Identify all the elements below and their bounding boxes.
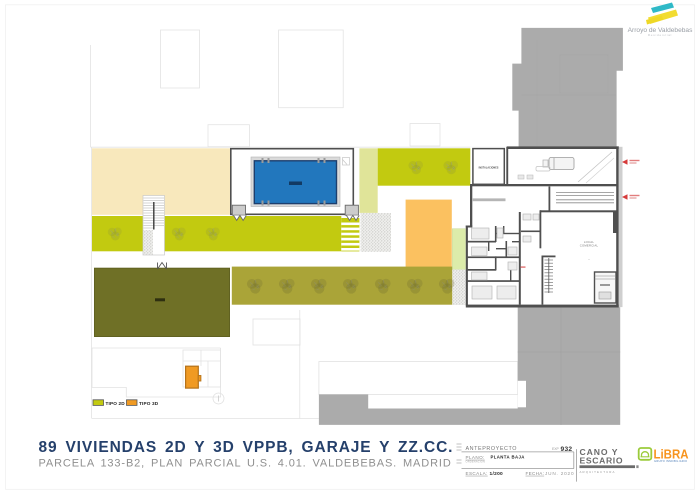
svg-text:89 VIVIENDAS 2D Y 3D VPPB, GAR: 89 VIVIENDAS 2D Y 3D VPPB, GARAJE Y ZZ.C… [39,439,454,456]
svg-text:ESCARIO: ESCARIO [580,455,623,465]
svg-text:TIPO 3D: TIPO 3D [139,401,159,406]
svg-text:INSTALACIONES: INSTALACIONES [479,166,499,169]
svg-text:TIPO 2D: TIPO 2D [106,401,126,406]
svg-text:PLANO:: PLANO: [466,455,485,460]
svg-text:932: 932 [561,446,573,453]
svg-text:COMERCIAL: COMERCIAL [580,244,599,248]
svg-text:JUN. 2020: JUN. 2020 [545,471,574,476]
svg-text:GRUPO INMOBILIARIO: GRUPO INMOBILIARIO [654,459,687,463]
svg-text:ORDENACION: ORDENACION [466,459,486,463]
svg-text:ESCALA:: ESCALA: [466,471,488,476]
svg-text:PLANTA BAJA: PLANTA BAJA [491,455,525,460]
svg-text:ARQUITECTURA: ARQUITECTURA [580,470,616,474]
svg-text:Residencial: Residencial [648,33,672,37]
svg-text:FECHA:: FECHA: [526,471,545,476]
svg-text:~: ~ [588,257,590,261]
svg-text:PARCELA 133-B2, PLAN PARCIAL U: PARCELA 133-B2, PLAN PARCIAL U.S. 4.01. … [39,457,452,469]
svg-text:1/200: 1/200 [490,471,504,477]
svg-text:EXP: EXP [552,447,560,451]
svg-text:ANTEPROYECTO: ANTEPROYECTO [466,446,517,452]
